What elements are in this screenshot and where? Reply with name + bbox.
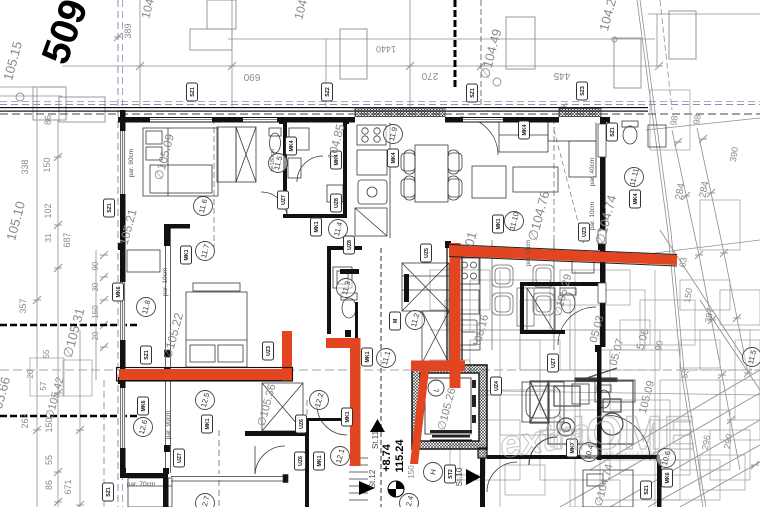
svg-text:389: 389 [123, 23, 133, 38]
svg-text:par. 70cm: par. 70cm [127, 481, 156, 488]
svg-text:98: 98 [668, 115, 680, 127]
svg-text:MK6: MK6 [665, 472, 671, 483]
svg-text:UZ7: UZ7 [281, 195, 287, 205]
svg-text:MK1: MK1 [205, 418, 211, 429]
svg-text:SZ1: SZ1 [610, 127, 616, 137]
svg-text:ST2: ST2 [448, 469, 454, 479]
svg-text:102: 102 [43, 203, 53, 218]
svg-text:90: 90 [91, 261, 100, 270]
svg-text:MK4: MK4 [522, 124, 528, 135]
svg-text:MK1: MK1 [184, 249, 190, 260]
svg-text:MK4: MK4 [391, 152, 397, 163]
svg-text:687: 687 [62, 232, 72, 247]
svg-text:UZ3: UZ3 [582, 227, 588, 237]
svg-text:UZ7: UZ7 [177, 453, 183, 463]
svg-text:UZ4: UZ4 [494, 381, 500, 391]
svg-text:357: 357 [18, 298, 28, 313]
svg-text:SZ1: SZ1 [107, 203, 113, 213]
svg-text:MK1: MK1 [345, 411, 351, 422]
svg-text:SZ3: SZ3 [580, 86, 586, 96]
svg-text:M: M [393, 319, 399, 323]
svg-text:UZ6: UZ6 [299, 419, 305, 429]
svg-text:par. 16cm: par. 16cm [526, 240, 532, 266]
svg-text:90: 90 [653, 340, 665, 352]
svg-text:MK1: MK1 [496, 218, 502, 229]
svg-text:SZ1: SZ1 [470, 88, 476, 98]
svg-text:30: 30 [91, 282, 100, 291]
svg-text:150: 150 [44, 417, 54, 432]
svg-text:20: 20 [26, 369, 35, 378]
svg-text:1440: 1440 [376, 44, 396, 54]
svg-text:98: 98 [691, 114, 703, 126]
svg-text:55: 55 [44, 455, 54, 465]
svg-text:UZ8: UZ8 [334, 198, 340, 208]
svg-text:St.10: St.10 [455, 467, 464, 486]
svg-text:MK1: MK1 [314, 221, 320, 232]
svg-text:63: 63 [677, 257, 689, 269]
svg-text:+8.74: +8.74 [381, 443, 393, 472]
svg-text:MK1: MK1 [317, 455, 323, 466]
svg-text:MK4: MK4 [633, 193, 639, 204]
svg-text:20: 20 [91, 331, 100, 340]
svg-text:SZ1: SZ1 [644, 485, 650, 495]
svg-text:St.11: St.11 [371, 430, 380, 449]
svg-text:150: 150 [91, 305, 100, 319]
svg-text:MK6: MK6 [141, 400, 147, 411]
svg-text:55: 55 [42, 349, 51, 358]
svg-text:150: 150 [407, 465, 416, 479]
svg-text:par. 40cm: par. 40cm [589, 158, 596, 187]
svg-text:338: 338 [20, 159, 30, 174]
svg-text:SZ2: SZ2 [325, 87, 331, 97]
svg-text:270: 270 [421, 70, 438, 81]
svg-text:par. 90cm: par. 90cm [128, 149, 135, 178]
svg-text:St.12: St.12 [368, 469, 377, 488]
svg-text:SZ1: SZ1 [106, 487, 112, 497]
svg-text:MK1: MK1 [365, 351, 371, 362]
svg-text:445: 445 [553, 70, 570, 81]
svg-text:par. 90cm: par. 90cm [165, 411, 172, 440]
svg-text:UZ5: UZ5 [424, 248, 430, 258]
svg-text:par. 10cm: par. 10cm [162, 268, 169, 297]
svg-text:UZ3: UZ3 [266, 346, 272, 356]
svg-text:h=160cm: h=160cm [270, 148, 276, 171]
svg-text:MK6: MK6 [116, 286, 122, 297]
svg-text:53: 53 [679, 368, 691, 380]
svg-text:UZ8: UZ8 [347, 240, 353, 250]
svg-text:86: 86 [44, 480, 54, 490]
svg-text:86: 86 [43, 115, 53, 125]
svg-text:MK4: MK4 [289, 140, 295, 151]
svg-text:SZ1: SZ1 [190, 87, 196, 97]
svg-text:UZ6: UZ6 [298, 456, 304, 466]
svg-text:690: 690 [243, 71, 260, 82]
svg-text:w w w . e x t r a h o m e . m: w w w . e x t r a h o m e . m e [597, 451, 677, 457]
svg-text:57: 57 [39, 381, 48, 390]
svg-text:SZ1: SZ1 [144, 350, 150, 360]
svg-text:671: 671 [63, 479, 73, 494]
svg-text:UZ7: UZ7 [551, 358, 557, 368]
svg-text:263: 263 [20, 413, 30, 428]
svg-text:par. 10cm: par. 10cm [589, 202, 596, 231]
svg-text:150: 150 [42, 157, 52, 172]
svg-text:31: 31 [44, 233, 53, 242]
svg-text:115.24: 115.24 [394, 439, 406, 473]
